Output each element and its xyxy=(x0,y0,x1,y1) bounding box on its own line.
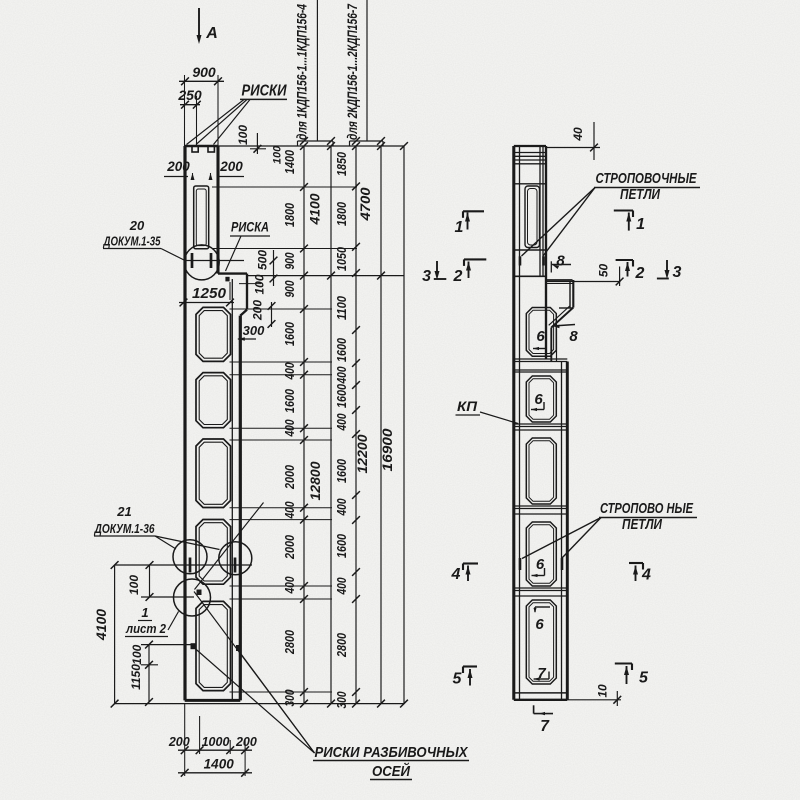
svg-text:1600: 1600 xyxy=(335,384,349,408)
svg-text:для 2КДП156-1...2КДП156-7: для 2КДП156-1...2КДП156-7 xyxy=(345,3,360,140)
svg-text:400: 400 xyxy=(283,501,297,519)
svg-text:900: 900 xyxy=(283,280,297,297)
svg-text:1250: 1250 xyxy=(192,285,227,302)
svg-text:1800: 1800 xyxy=(335,202,349,226)
svg-text:400: 400 xyxy=(335,413,349,431)
svg-text:2: 2 xyxy=(453,268,463,285)
svg-text:6: 6 xyxy=(536,328,545,345)
svg-text:2000: 2000 xyxy=(283,465,297,490)
svg-text:400: 400 xyxy=(283,362,297,380)
svg-text:1600: 1600 xyxy=(283,389,297,413)
svg-text:50: 50 xyxy=(597,264,611,278)
svg-text:300: 300 xyxy=(243,323,265,338)
svg-text:200: 200 xyxy=(251,300,265,321)
svg-text:1400: 1400 xyxy=(204,757,235,772)
svg-text:16900: 16900 xyxy=(380,428,395,472)
svg-text:21: 21 xyxy=(116,504,131,519)
svg-text:4100: 4100 xyxy=(93,609,109,641)
svg-text:100: 100 xyxy=(272,145,284,164)
svg-text:1150: 1150 xyxy=(129,664,143,690)
svg-text:400: 400 xyxy=(335,366,349,384)
svg-text:1850: 1850 xyxy=(335,152,349,176)
svg-text:1800: 1800 xyxy=(283,203,297,227)
svg-text:20: 20 xyxy=(129,218,145,233)
svg-text:РИСКА: РИСКА xyxy=(231,219,269,235)
svg-text:ПЕТЛИ: ПЕТЛИ xyxy=(620,187,660,203)
svg-text:4: 4 xyxy=(641,567,651,584)
svg-text:200: 200 xyxy=(166,159,190,174)
svg-text:1: 1 xyxy=(141,605,148,620)
svg-text:СТРОПОВОЧНЫЕ: СТРОПОВОЧНЫЕ xyxy=(596,171,698,187)
svg-text:КП: КП xyxy=(457,398,478,414)
svg-text:200: 200 xyxy=(219,159,243,174)
svg-text:5: 5 xyxy=(639,670,649,687)
svg-text:ПЕТЛИ: ПЕТЛИ xyxy=(622,517,662,533)
svg-text:100: 100 xyxy=(236,125,250,145)
svg-text:40: 40 xyxy=(571,127,585,142)
svg-text:1600: 1600 xyxy=(283,322,297,346)
svg-text:200: 200 xyxy=(168,735,190,749)
svg-text:900: 900 xyxy=(192,64,216,80)
svg-text:5: 5 xyxy=(453,671,463,688)
svg-text:10: 10 xyxy=(596,684,610,698)
svg-text:400: 400 xyxy=(335,577,349,595)
svg-text:2: 2 xyxy=(635,265,645,282)
svg-text:4: 4 xyxy=(451,566,461,583)
svg-text:ДОКУМ.1-35: ДОКУМ.1-35 xyxy=(103,235,162,249)
svg-text:СТРОПОВО НЫЕ: СТРОПОВО НЫЕ xyxy=(600,501,694,517)
svg-text:для 1КДП156-1...1КДП156-4: для 1КДП156-1...1КДП156-4 xyxy=(295,4,310,140)
svg-text:7: 7 xyxy=(540,718,550,735)
svg-text:100: 100 xyxy=(127,575,141,595)
svg-text:1600: 1600 xyxy=(335,459,349,483)
svg-text:500: 500 xyxy=(256,250,270,270)
svg-text:300: 300 xyxy=(283,689,297,706)
svg-text:12800: 12800 xyxy=(308,461,323,501)
svg-text:2000: 2000 xyxy=(283,535,297,560)
svg-text:900: 900 xyxy=(283,252,297,269)
svg-text:А: А xyxy=(205,25,218,42)
svg-text:РИСКИ: РИСКИ xyxy=(242,83,288,100)
svg-text:250: 250 xyxy=(177,87,202,103)
svg-text:400: 400 xyxy=(283,576,297,594)
svg-text:4100: 4100 xyxy=(308,193,323,226)
svg-text:лист 2: лист 2 xyxy=(125,621,167,636)
svg-text:6: 6 xyxy=(535,616,544,633)
svg-text:400: 400 xyxy=(335,498,349,516)
svg-text:200: 200 xyxy=(235,735,257,749)
svg-text:300: 300 xyxy=(335,691,349,708)
svg-text:РИСКИ РАЗБИВОЧНЫХ: РИСКИ РАЗБИВОЧНЫХ xyxy=(315,744,469,761)
svg-text:1: 1 xyxy=(455,219,464,236)
svg-text:1600: 1600 xyxy=(335,338,349,362)
svg-text:6: 6 xyxy=(536,556,545,573)
svg-text:12200: 12200 xyxy=(355,434,370,474)
svg-text:1400: 1400 xyxy=(283,150,297,174)
svg-text:100: 100 xyxy=(253,274,267,294)
svg-text:2800: 2800 xyxy=(335,633,349,658)
svg-text:3: 3 xyxy=(422,268,431,285)
svg-text:400: 400 xyxy=(283,419,297,437)
svg-text:6: 6 xyxy=(534,391,543,408)
svg-text:ОСЕЙ: ОСЕЙ xyxy=(372,762,411,780)
svg-text:1: 1 xyxy=(636,216,645,233)
svg-text:ДОКУМ.1-36: ДОКУМ.1-36 xyxy=(94,522,156,536)
svg-text:100: 100 xyxy=(130,644,144,664)
svg-text:2800: 2800 xyxy=(283,630,297,655)
svg-text:1600: 1600 xyxy=(335,534,349,558)
svg-text:8: 8 xyxy=(569,328,578,345)
svg-text:4700: 4700 xyxy=(358,187,373,222)
svg-text:1050: 1050 xyxy=(335,247,349,271)
svg-text:3: 3 xyxy=(673,264,682,281)
svg-text:1100: 1100 xyxy=(335,296,349,320)
svg-text:1000: 1000 xyxy=(202,735,230,749)
